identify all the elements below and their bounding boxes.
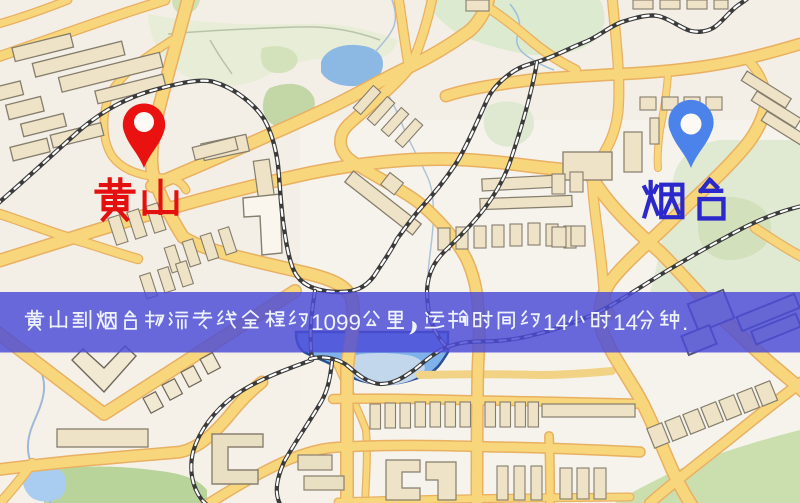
svg-text:.: . (682, 310, 688, 335)
svg-text:14: 14 (543, 310, 568, 335)
svg-text:1099: 1099 (311, 310, 361, 335)
svg-text:14: 14 (613, 310, 638, 335)
